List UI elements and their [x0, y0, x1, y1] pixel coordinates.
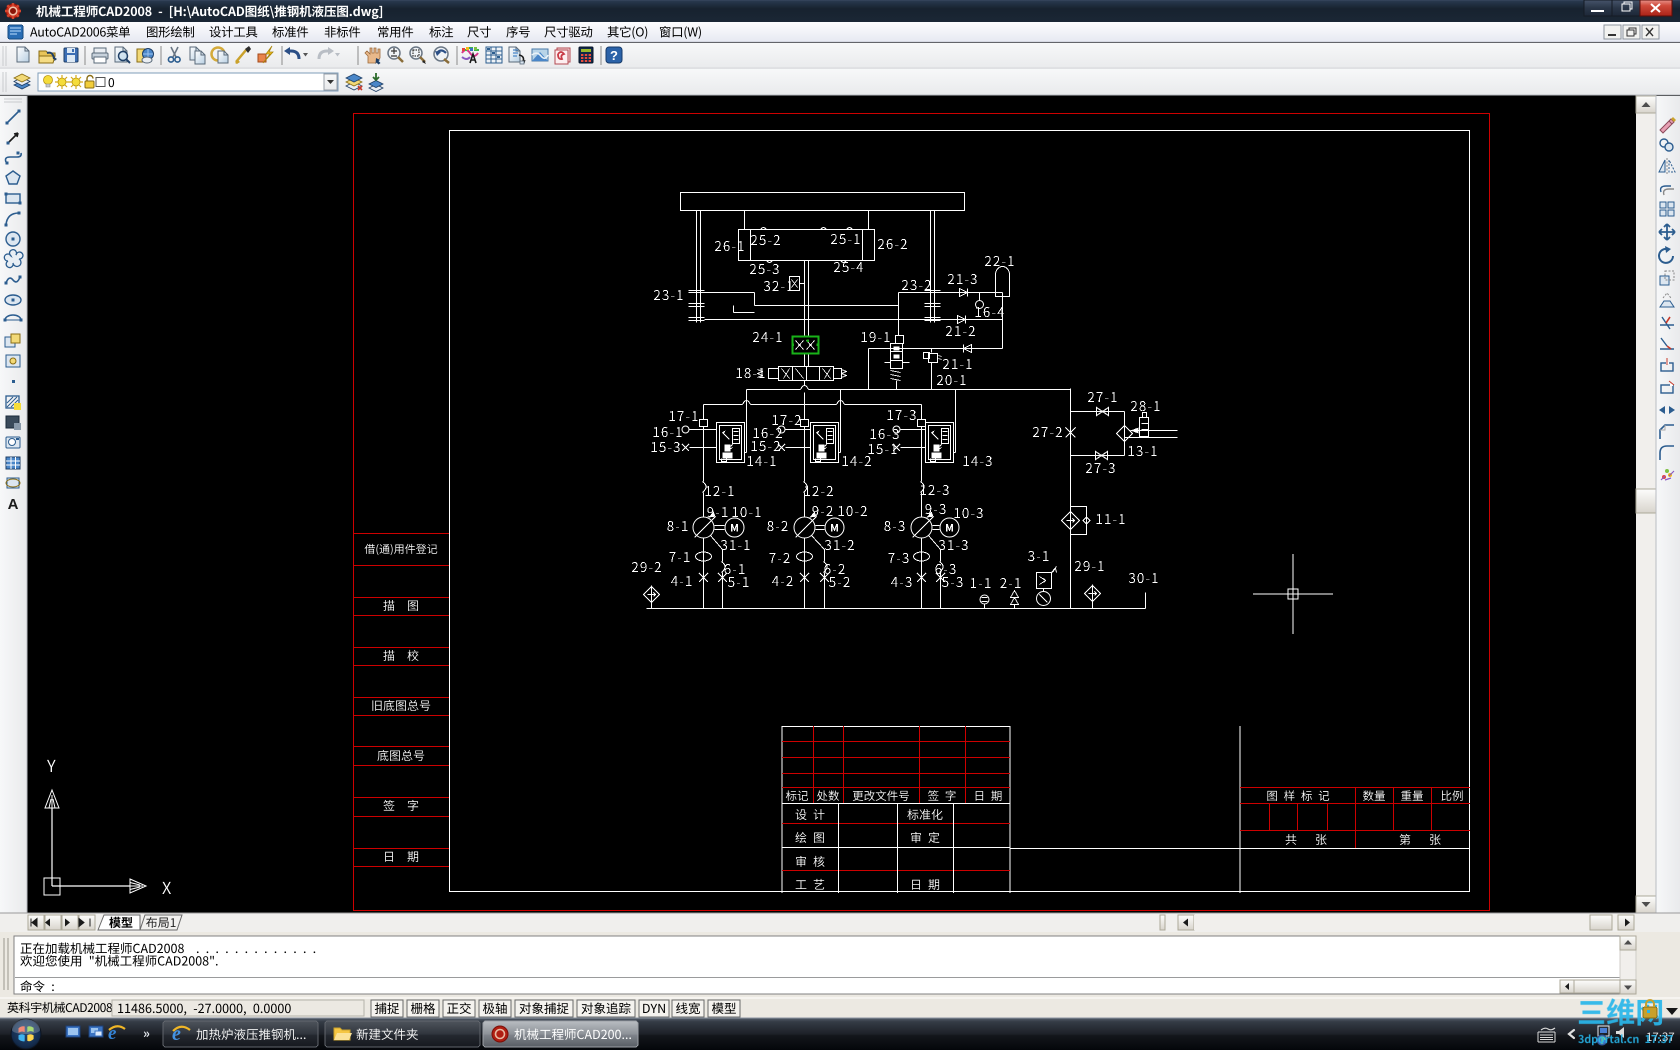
svg-text:?: ? [610, 48, 618, 63]
svg-text:A: A [8, 496, 19, 513]
